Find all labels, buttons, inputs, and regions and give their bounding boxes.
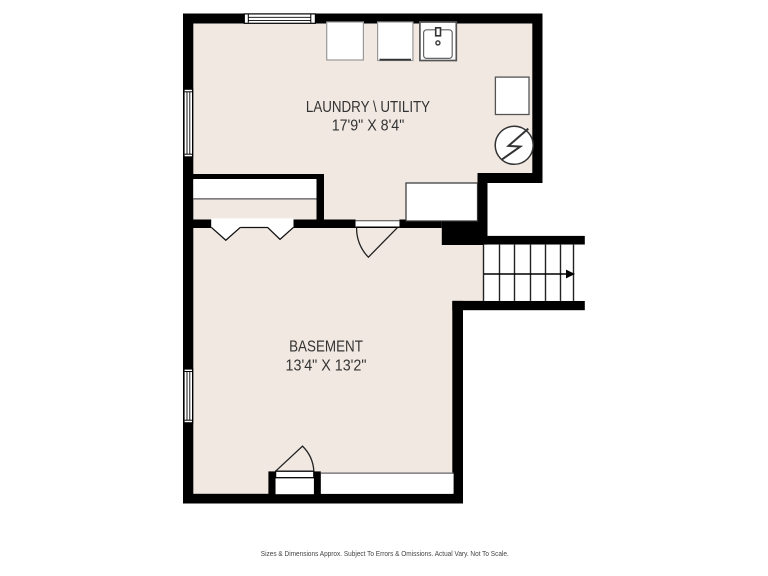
svg-text:LAUNDRY \ UTILITY: LAUNDRY \ UTILITY: [306, 99, 430, 116]
svg-text:BASEMENT: BASEMENT: [289, 339, 363, 356]
svg-text:17'9" X 8'4": 17'9" X 8'4": [332, 118, 405, 135]
svg-text:13'4" X 13'2": 13'4" X 13'2": [286, 357, 367, 374]
svg-text:Sizes & Dimensions Approx. Sub: Sizes & Dimensions Approx. Subject To Er…: [261, 549, 509, 558]
